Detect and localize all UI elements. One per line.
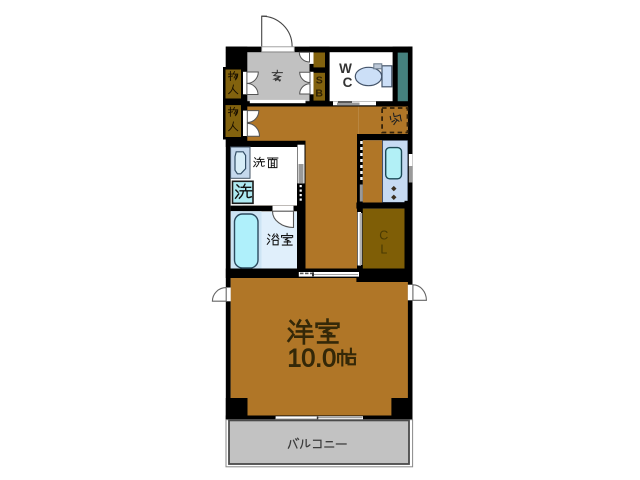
svg-text:S: S: [316, 75, 323, 87]
svg-text:B: B: [315, 88, 323, 100]
svg-text:C: C: [379, 229, 388, 243]
svg-text:W: W: [339, 61, 352, 76]
svg-text:C: C: [343, 75, 353, 90]
svg-text:10.0: 10.0: [288, 345, 337, 373]
svg-text:L: L: [380, 243, 387, 257]
